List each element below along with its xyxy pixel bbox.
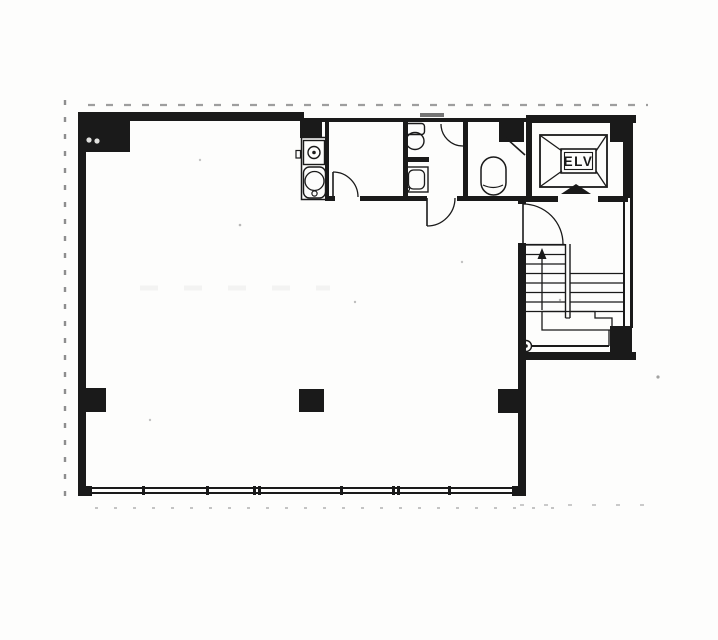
wall-elv-bottom-west — [526, 196, 558, 202]
column-center — [299, 389, 324, 412]
scan-speck-6 — [199, 159, 201, 161]
wc2-toilet — [481, 157, 506, 195]
wall-top-service — [302, 118, 532, 122]
scan-speck-4 — [461, 261, 463, 263]
stair-direction-arrow — [538, 248, 547, 259]
wc1-stall-door-swing — [441, 124, 463, 146]
window-mullion-5 — [340, 486, 343, 495]
wc2-toilet-seatline — [483, 185, 503, 188]
wall-wing-east-line1 — [623, 198, 625, 328]
column-east-wall — [498, 389, 518, 413]
wall-wing-west — [526, 120, 532, 202]
corner-block-se — [512, 486, 526, 496]
scan-white-mark-2 — [94, 138, 99, 143]
scan-white-mark-1 — [86, 137, 91, 142]
elevator-door-marker — [561, 184, 591, 194]
scan-speck-1 — [239, 224, 242, 227]
window-mullion-8 — [448, 486, 451, 495]
column-n-kitchen — [300, 120, 322, 138]
kitchen-basin-drain — [312, 191, 317, 196]
wc1-sink-basin — [409, 170, 425, 189]
window-mark-top — [420, 113, 444, 117]
window-mullion-2 — [206, 486, 209, 495]
window-sill-top — [86, 487, 518, 489]
window-mullion-4 — [258, 486, 261, 495]
scan-speck-3 — [149, 419, 151, 421]
kitchen-basin-bowl — [305, 172, 324, 191]
elevator-cross-se — [596, 171, 606, 186]
floor-plan-scan: ELV — [0, 0, 718, 640]
window-mullion-6 — [392, 486, 395, 495]
column-nw — [86, 118, 130, 152]
wall-service-bottom-c — [457, 196, 526, 201]
column-west-wall — [86, 388, 106, 412]
room1-door-swing — [333, 172, 358, 197]
stair-landing-outline — [542, 312, 612, 331]
wall-left — [78, 112, 86, 496]
wc1-entry-door-swing — [427, 198, 455, 226]
column-se-wing — [610, 326, 632, 354]
wall-wc-divider — [463, 120, 468, 196]
scan-speck-7 — [656, 375, 659, 378]
kitchen-knob — [296, 151, 301, 159]
elevator-cross-ne — [596, 136, 606, 151]
elevator-cross-sw — [541, 171, 562, 186]
column-n-wc — [499, 120, 524, 142]
elevator-label: ELV — [564, 154, 594, 169]
column-ne — [610, 118, 632, 142]
wall-east-main — [518, 243, 526, 490]
scan-speck-5 — [559, 299, 561, 301]
wall-service-bottom-b — [360, 196, 427, 201]
window-sill-bottom — [86, 492, 518, 494]
scan-speck-2 — [354, 301, 356, 303]
wall-wc1-partition — [403, 157, 429, 162]
window-mullion-7 — [397, 486, 400, 495]
wall-wing-east-line2 — [630, 198, 633, 328]
elevator-cross-nw — [541, 136, 562, 151]
hall-door-swing — [523, 204, 563, 244]
kitchen-sink-dot — [312, 151, 316, 155]
window-mullion-1 — [142, 486, 145, 495]
stair-newel-dot — [524, 344, 528, 348]
window-mullion-3 — [253, 486, 256, 495]
corner-block-sw — [78, 486, 92, 496]
floor-plan-drawing: ELV — [0, 0, 718, 640]
